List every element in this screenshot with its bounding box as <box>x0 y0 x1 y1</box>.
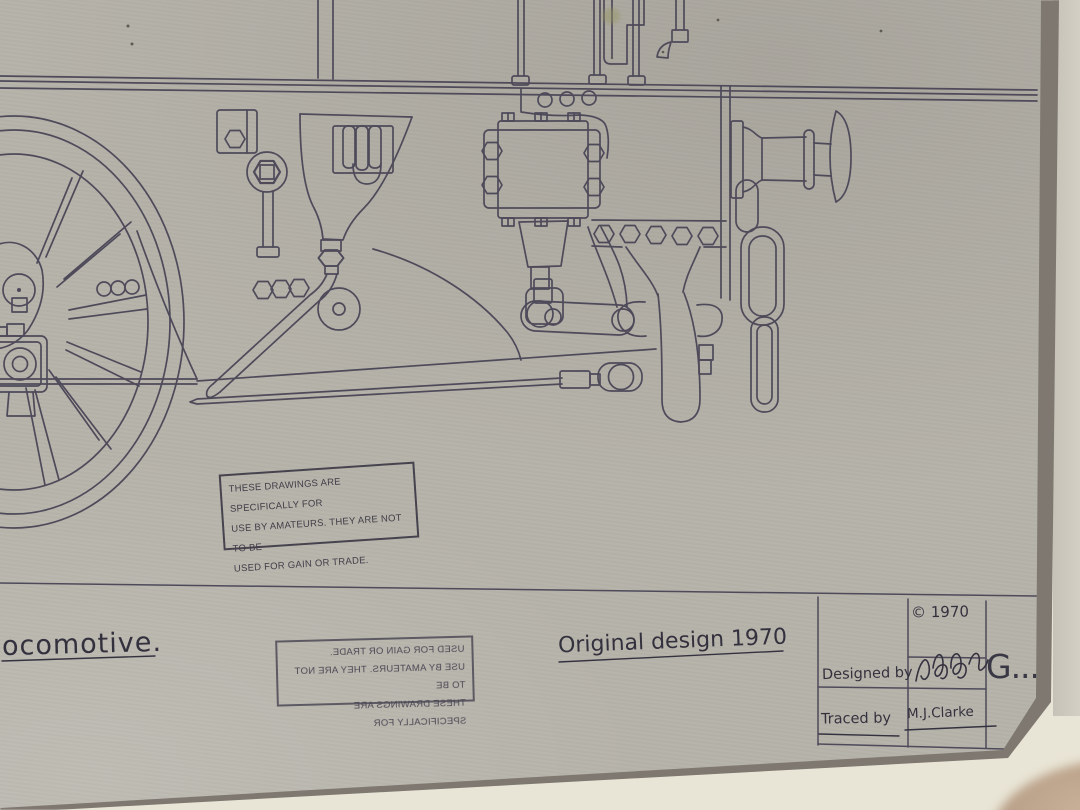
drag-beam <box>592 220 726 247</box>
frame-bolts <box>97 280 309 299</box>
idler-pivot <box>318 288 360 330</box>
tank-side-lines <box>318 0 333 79</box>
border-lines <box>0 583 1037 596</box>
running-board <box>0 76 1037 101</box>
valve-linkage <box>519 221 634 335</box>
locomotive-drawing <box>0 0 1080 810</box>
stamp-line-mirrored: THESE DRAWINGS ARE SPECIFICALLY FOR <box>286 695 467 736</box>
blueprint-paper: THESE DRAWINGS ARE SPECIFICALLY FOR USE … <box>0 0 1080 810</box>
crank-and-axlebox <box>0 242 47 416</box>
support-bracket <box>300 114 412 240</box>
spring-hanger <box>247 152 287 257</box>
coupling-chain <box>736 180 784 412</box>
finger <box>988 760 1080 810</box>
amateur-notice-stamp-mirrored: USED FOR GAIN OR TRADE. USE BY AMATEURS.… <box>275 635 475 706</box>
driving-wheel <box>0 116 184 528</box>
drain-pipe <box>207 240 344 397</box>
buffer <box>731 111 851 202</box>
steam-chest <box>482 113 604 226</box>
drawing-caption: ocomotive. <box>2 627 163 662</box>
traced-by-label: Traced by <box>821 710 891 727</box>
copyright-notice: © 1970 <box>911 602 969 621</box>
lower-rod <box>190 363 642 404</box>
stamp-line-mirrored: USE BY AMATEURS. THEY ARE NOT TO BE <box>285 659 466 700</box>
paper-stain <box>602 8 620 24</box>
traced-by-value: M.J.Clarke <box>907 704 974 722</box>
paper-specks <box>127 19 883 60</box>
coupling-hook <box>618 247 722 422</box>
hanger-bracket <box>217 110 257 153</box>
designed-by-label: Designed by <box>822 665 913 683</box>
handrail-stanchions <box>512 0 688 85</box>
amateur-notice-stamp: THESE DRAWINGS ARE SPECIFICALLY FOR USE … <box>219 462 420 551</box>
photo-of-blueprint: THESE DRAWINGS ARE SPECIFICALLY FOR USE … <box>0 0 1080 810</box>
frame-stay-bracket <box>521 89 608 158</box>
